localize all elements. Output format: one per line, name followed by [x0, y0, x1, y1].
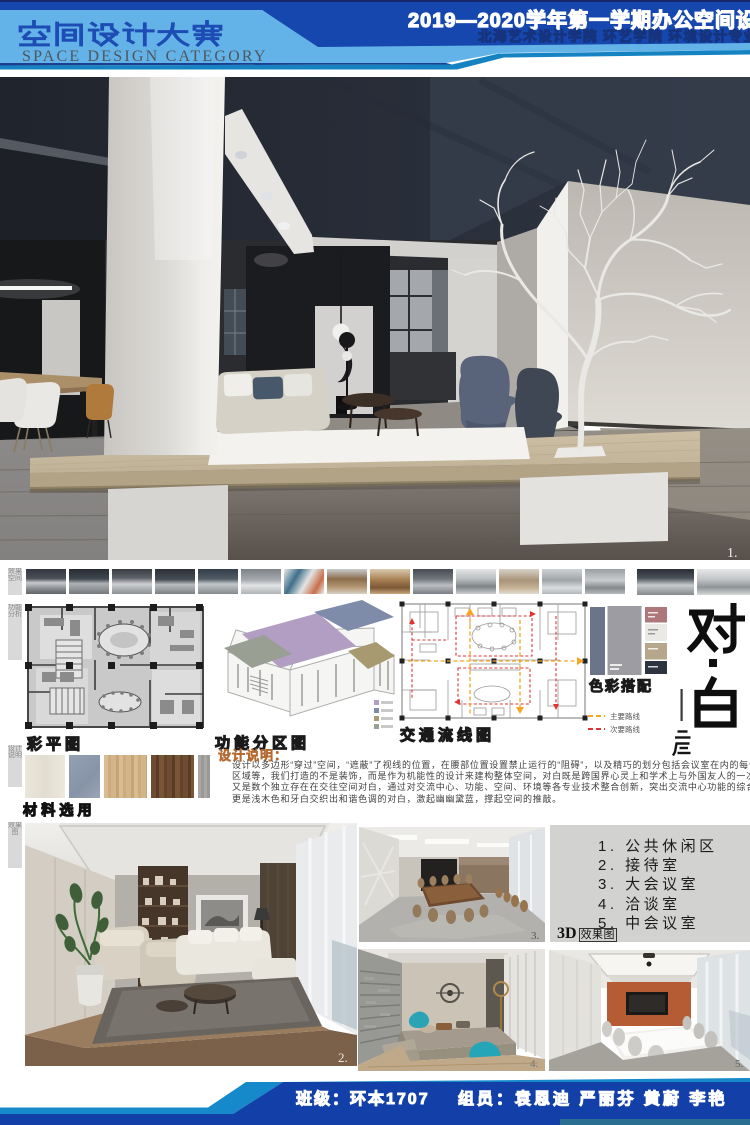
svg-text:2.: 2.: [338, 1050, 348, 1065]
svg-text:北海艺术设计学院 环艺学院 环境设计专业: 北海艺术设计学院 环艺学院 环境设计专业: [478, 28, 750, 44]
svg-text:4.: 4.: [530, 1058, 539, 1070]
svg-text:5.: 5.: [735, 1058, 744, 1070]
svg-text:3.: 3.: [531, 930, 540, 942]
svg-text:SPACE DESIGN CATEGORY: SPACE DESIGN CATEGORY: [22, 48, 268, 65]
svg-text:组员：袁恩迪 严丽芬 黄蔚 李艳: 组员：袁恩迪 严丽芬 黄蔚 李艳: [458, 1089, 727, 1108]
svg-text:色彩搭配: 色彩搭配: [589, 678, 653, 694]
svg-text:次要路线: 次要路线: [610, 724, 640, 734]
svg-text:主要路线: 主要路线: [610, 711, 640, 721]
svg-text:班级：环本1707: 班级：环本1707: [296, 1089, 430, 1108]
svg-text:交通流线图: 交通流线图: [400, 726, 495, 744]
svg-text:1.: 1.: [727, 546, 738, 560]
svg-text:彩平图: 彩平图: [26, 735, 84, 753]
